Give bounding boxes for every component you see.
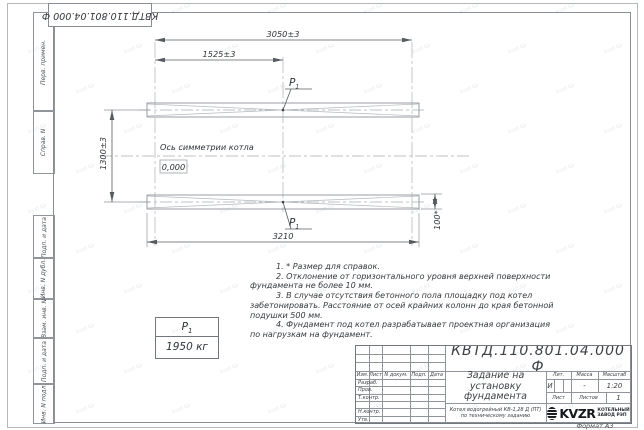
- lit-value: И: [546, 379, 554, 392]
- row-nkontr: Н.контр.: [356, 408, 384, 416]
- note-line: забетонировать. Расстояние от осей крайн…: [250, 301, 630, 311]
- elevation-mark: 0,000: [162, 162, 185, 172]
- sheets-value: 1: [606, 392, 631, 403]
- note-line: 3. В случае отсутствия бетонного пола пл…: [250, 291, 630, 301]
- dim-1525-text: 1525±3: [203, 49, 236, 59]
- sheet-label: Лист: [546, 392, 571, 403]
- col-header-list: Лист: [369, 371, 382, 379]
- mass-value: -: [571, 379, 598, 392]
- svg-text:P1: P1: [289, 217, 299, 231]
- doc-number-stamp-text: КВТД.110.801.04.000 Ф: [42, 10, 158, 21]
- col-header-data: Дата: [428, 371, 445, 379]
- col-header-doc: N докум.: [382, 371, 410, 379]
- note-line: 2. Отклонение от горизонтального уровня …: [250, 272, 630, 282]
- load-symbol-bottom-sub: 1: [295, 224, 299, 231]
- title-block-title: Задание на установку фундамента: [448, 371, 543, 403]
- col-header-izm: Изм.: [356, 371, 369, 379]
- note-line: 1. * Размер для справок.: [250, 262, 630, 272]
- svg-text:P1: P1: [289, 77, 299, 91]
- mass-header: Масса: [571, 371, 598, 379]
- kvzr-caption-line2: ЗАВОД РЭП: [597, 413, 629, 418]
- dimension-1525: 1525±3: [155, 49, 283, 60]
- title-block-product: Котел водогрейный КВ-1,28 Д (ПТ) по техн…: [448, 403, 543, 423]
- symmetry-axis-label: Ось симметрии котла: [160, 142, 254, 152]
- lit-header: Лит.: [546, 371, 571, 379]
- dimension-3210: 3210: [147, 213, 419, 247]
- title-block: Изм. Лист N докум. Подп. Дата Разраб. Пр…: [355, 345, 632, 424]
- note-line: фундамента не более 10 мм.: [250, 281, 630, 291]
- dim-3210-text: 3210: [273, 231, 294, 241]
- doc-number-stamp: КВТД.110.801.04.000 Ф: [48, 3, 152, 27]
- row-tkontr: Т.контр.: [356, 394, 384, 401]
- note-line: по нагрузкам на фундамент.: [250, 330, 630, 340]
- load-point-top: P1: [282, 77, 312, 111]
- load-point-bottom: P1: [282, 201, 312, 231]
- kvzr-logo: KVZR КОТЕЛЬНЫЙ ЗАВОД РЭП: [546, 403, 631, 423]
- col-header-podp: Подп.: [410, 371, 428, 379]
- row-prov: Пров.: [356, 386, 384, 394]
- kvzr-logo-text: KVZR: [559, 406, 595, 421]
- load-symbol-top-sub: 1: [295, 84, 299, 91]
- title-block-doc-number: КВТД.110.801.04.000 Ф: [445, 346, 631, 371]
- notes-block: 1. * Размер для справок. 2. Отклонение о…: [250, 262, 630, 340]
- load-table-symbol: P1: [156, 318, 218, 337]
- scale-value: 1:20: [598, 379, 631, 392]
- row-utv: Утв.: [356, 416, 384, 423]
- drawing-sheet: kvzr.kzkvzr.kzkvzr.kzkvzr.kzkvzr.kzkvzr.…: [0, 0, 644, 430]
- dimension-3050: 3050±3: [155, 29, 412, 40]
- boiler-symmetry-axis: Ось симметрии котла 0,000: [100, 142, 470, 173]
- dim-1300-text: 1300±3: [98, 137, 108, 170]
- load-table: P1 1950 кг: [155, 317, 219, 359]
- dimension-100: 100*: [421, 194, 442, 230]
- dim-100-text: 100*: [432, 210, 442, 230]
- scale-header: Масштаб: [598, 371, 631, 379]
- sheets-label: Листов: [571, 392, 606, 403]
- note-line: подушки 500 мм.: [250, 311, 630, 321]
- kvzr-emblem-icon: [547, 407, 557, 420]
- note-line: 4. Фундамент под котел разрабатывает про…: [250, 320, 630, 330]
- load-table-value: 1950 кг: [156, 337, 218, 358]
- dim-3050-text: 3050±3: [267, 29, 300, 39]
- row-razrab: Разраб.: [356, 379, 384, 386]
